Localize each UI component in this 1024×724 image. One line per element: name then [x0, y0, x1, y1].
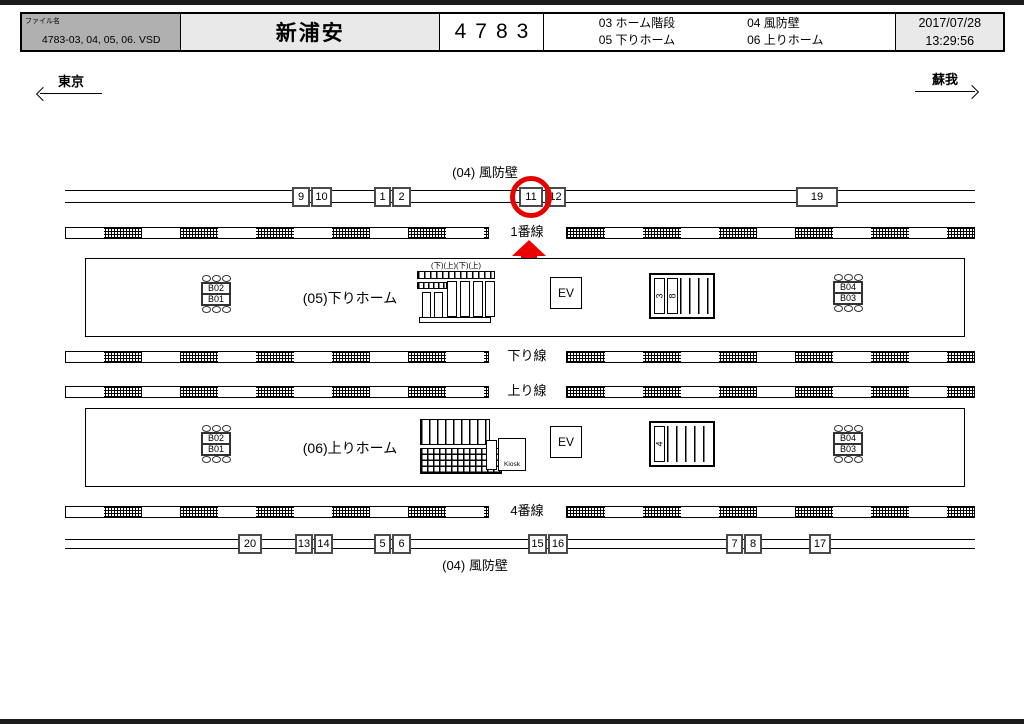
legend-item-04: 04 風防壁	[747, 15, 895, 32]
stair-treads	[680, 278, 710, 314]
bench-seat-dots	[199, 425, 233, 432]
wall-panel-2: 2	[392, 187, 411, 207]
wall-panel-9: 9	[292, 187, 310, 207]
wall-panel-16: 16	[548, 534, 568, 554]
window-top-bar	[0, 0, 1024, 5]
wall-panel-19: 19	[796, 187, 838, 207]
bench-seat-dots	[831, 425, 865, 432]
bench-label: B03	[833, 444, 863, 456]
highlight-arrow-head	[512, 240, 546, 256]
escalator-post	[434, 292, 443, 318]
stair-number: 3	[654, 278, 665, 314]
staircase-4: 4	[649, 421, 715, 467]
windbreak-wall-bottom-label: (04) 風防壁	[415, 555, 535, 574]
kiosk-shaft	[486, 440, 497, 470]
highlight-circle	[510, 176, 552, 218]
wall-panel-1: 1	[374, 187, 391, 207]
track-label: 4番線	[488, 503, 566, 519]
escalator-shaft	[460, 281, 470, 317]
kiosk: Kiosk	[498, 438, 526, 471]
bench-seat-dots	[831, 274, 865, 281]
stair-upper-block	[420, 419, 490, 445]
bench-b02-b01-down: B02 B01	[199, 275, 233, 313]
datetime-cell: 2017/07/28 13:29:56	[896, 14, 1003, 50]
wall-panel-10: 10	[311, 187, 332, 207]
stair-number: 8	[667, 278, 678, 314]
elevator-down: EV	[550, 277, 582, 309]
track-label: 下り線	[488, 348, 566, 364]
escalator-structure	[417, 271, 495, 323]
bench-label: B02	[201, 282, 231, 294]
escalator-direction-labels: (下)(上)(下)(上)	[417, 261, 495, 271]
wall-panel-20: 20	[238, 534, 262, 554]
track-band	[65, 227, 489, 239]
file-name-label: ファイル名	[25, 16, 60, 26]
bench-seat-dots	[831, 305, 865, 312]
escalator-top-rail	[417, 271, 495, 279]
bench-seat-dots	[199, 275, 233, 282]
station-name: 新浦安	[181, 14, 440, 50]
platform-06-label: (06)上りホーム	[290, 438, 410, 458]
wall-panel-13: 13	[295, 534, 313, 554]
wall-panel-17: 17	[809, 534, 831, 554]
track-band	[65, 386, 489, 398]
sheet-legend: 03 ホーム階段 04 風防壁 05 下りホーム 06 上りホーム	[544, 14, 897, 50]
date-value: 2017/07/28	[918, 14, 981, 32]
track-band	[566, 386, 975, 398]
track-band	[65, 351, 489, 363]
wall-panel-15: 15	[528, 534, 547, 554]
legend-item-03: 03 ホーム階段	[599, 15, 747, 32]
bench-label: B02	[201, 432, 231, 444]
windbreak-wall-bottom	[65, 539, 975, 549]
bench-b04-b03-down: B04 B03	[831, 274, 865, 312]
escalator-group: (下)(上)(下)(上)	[417, 261, 495, 323]
staircase-3-8: 3 8	[649, 273, 715, 319]
wall-panel-6: 6	[392, 534, 411, 554]
station-code: 4783	[440, 14, 544, 50]
stair-number: 4	[654, 426, 665, 462]
track-band	[566, 351, 975, 363]
track-label: 上り線	[488, 383, 566, 399]
wall-panel-7: 7	[726, 534, 743, 554]
elevator-up: EV	[550, 426, 582, 458]
bench-label: B01	[201, 294, 231, 306]
wall-panel-5: 5	[374, 534, 391, 554]
escalator-shaft	[485, 281, 495, 317]
header-bar: ファイル名 4783-03, 04, 05, 06. VSD 新浦安 4783 …	[20, 12, 1005, 52]
legend-item-05: 05 下りホーム	[599, 32, 747, 49]
track-band	[566, 227, 975, 239]
bench-seat-dots	[199, 456, 233, 463]
escalator-base	[419, 317, 491, 323]
track-label: 1番線	[488, 224, 566, 240]
direction-soga: 蘇我	[915, 69, 975, 92]
escalator-shaft	[447, 281, 457, 317]
track-band	[65, 506, 489, 518]
bench-b02-b01-up: B02 B01	[199, 425, 233, 463]
escalator-post	[422, 292, 431, 318]
direction-tokyo: 東京	[40, 71, 102, 94]
bench-seat-dots	[199, 306, 233, 313]
stair-treads	[667, 426, 710, 462]
bench-label: B04	[833, 432, 863, 444]
track-band	[566, 506, 975, 518]
bench-label: B04	[833, 281, 863, 293]
legend-item-06: 06 上りホーム	[747, 32, 895, 49]
wall-panel-14: 14	[314, 534, 333, 554]
file-name-cell: ファイル名 4783-03, 04, 05, 06. VSD	[22, 14, 181, 50]
escalator-left-rail	[417, 282, 447, 289]
station-diagram-window: ファイル名 4783-03, 04, 05, 06. VSD 新浦安 4783 …	[0, 0, 1024, 724]
bench-b04-b03-up: B04 B03	[831, 425, 865, 463]
bench-label: B03	[833, 293, 863, 305]
platform-05-label: (05)下りホーム	[290, 288, 410, 308]
time-value: 13:29:56	[925, 32, 974, 50]
file-name-value: 4783-03, 04, 05, 06. VSD	[22, 34, 180, 46]
wall-panel-8: 8	[744, 534, 762, 554]
bench-label: B01	[201, 444, 231, 456]
escalator-shaft	[473, 281, 483, 317]
window-bottom-bar	[0, 719, 1024, 724]
bench-seat-dots	[831, 456, 865, 463]
